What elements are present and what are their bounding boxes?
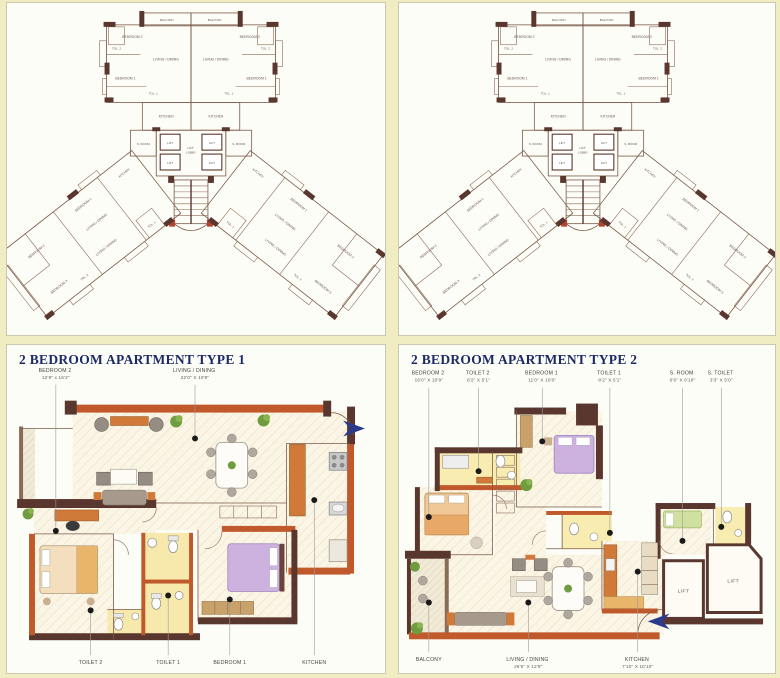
type1-plan-svg: BEDROOM 2 12'9" x 16'2" LIVING / DINING …	[7, 345, 385, 673]
apartment-type1-panel: 2 BEDROOM APARTMENT TYPE 1	[6, 344, 386, 674]
callout-kitchen: KITCHEN	[302, 660, 326, 666]
callout-bedroom1: BEDROOM 1	[213, 660, 246, 666]
lift-label: LIFT	[727, 579, 739, 585]
type2-plan-svg: LIFT LIFT BEDROOM 2 16'0" X 10'9" TOILET…	[399, 345, 775, 673]
callout-living-dining: LIVING / DINING 22'0" X 10'9"	[173, 368, 217, 380]
callout-kitchen: KITCHEN 7'10" X 10'10"	[622, 657, 653, 669]
callout-bedroom2: BEDROOM 2 16'0" X 10'9"	[412, 371, 446, 383]
callout-toilet1: TOILET 1	[156, 660, 180, 666]
tower-plan-panel-left	[6, 2, 386, 336]
callout-balcony: BALCONY	[416, 657, 442, 663]
type1-title: 2 BEDROOM APARTMENT TYPE 1	[19, 352, 245, 368]
lift-label: LIFT	[678, 589, 690, 595]
tower-plan-right-svg	[399, 3, 775, 335]
callout-servant-toilet: S. TOILET 3'3" X 5'0"	[707, 371, 735, 383]
callout-servant-room: S. ROOM 6'6" X 6'10"	[670, 371, 696, 383]
callout-living-dining: LIVING / DINING 26'5" X 12'9"	[506, 657, 550, 669]
callout-bedroom1: BEDROOM 1 11'0" X 10'0"	[525, 371, 559, 383]
tower-plan-left-svg	[7, 3, 385, 335]
callout-toilet2: TOILET 2	[79, 660, 103, 666]
callout-toilet1: TOILET 1 8'2" X 5'1"	[597, 371, 622, 383]
tower-plan-panel-right	[398, 2, 776, 336]
apartment-type2-panel: 2 BEDROOM APARTMENT TYPE 2	[398, 344, 776, 674]
type2-title: 2 BEDROOM APARTMENT TYPE 2	[411, 352, 637, 368]
callout-toilet2: TOILET 2 8'2" X 5'1"	[466, 371, 491, 383]
brochure-page: BALCONY BALCONY BEDROOM 2 BEDROOM 2 TOL.…	[0, 0, 780, 678]
callout-bedroom2: BEDROOM 2 12'9" x 16'2"	[39, 368, 73, 380]
